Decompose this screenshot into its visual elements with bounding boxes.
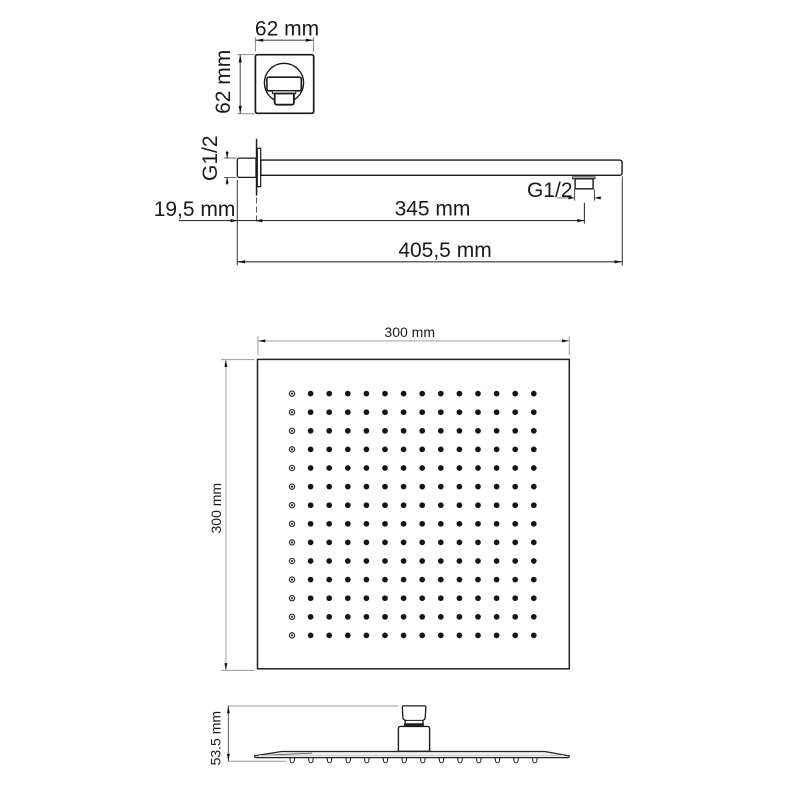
svg-text:G1/2: G1/2 <box>199 135 222 181</box>
svg-text:G1/2: G1/2 <box>527 179 573 202</box>
svg-text:405,5 mm: 405,5 mm <box>398 239 491 262</box>
svg-text:53.5 mm: 53.5 mm <box>208 711 224 765</box>
svg-text:300 mm: 300 mm <box>384 324 435 340</box>
svg-text:345 mm: 345 mm <box>395 198 471 221</box>
svg-text:62 mm: 62 mm <box>212 50 235 114</box>
svg-text:19,5 mm: 19,5 mm <box>154 198 236 221</box>
svg-text:62 mm: 62 mm <box>255 18 319 41</box>
svg-text:300 mm: 300 mm <box>208 483 224 534</box>
